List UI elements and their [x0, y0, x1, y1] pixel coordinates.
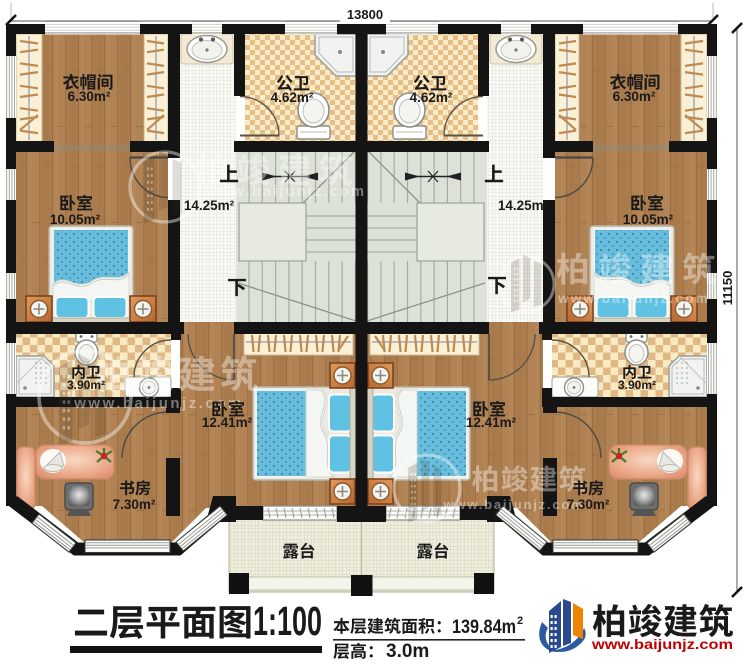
- svg-text:7.30m²: 7.30m²: [113, 497, 156, 512]
- svg-text:12.41m²: 12.41m²: [202, 415, 253, 430]
- svg-text:12.41m²: 12.41m²: [466, 415, 517, 430]
- svg-text:4.62m²: 4.62m²: [410, 90, 453, 105]
- svg-text:13800: 13800: [347, 7, 383, 22]
- svg-text:3.90m²: 3.90m²: [618, 378, 656, 392]
- svg-text:3.0m: 3.0m: [386, 641, 429, 662]
- svg-text:14.25m²: 14.25m²: [184, 198, 235, 213]
- svg-text:2: 2: [517, 615, 523, 627]
- svg-text:10.05m²: 10.05m²: [50, 212, 101, 227]
- svg-text:www.baijunjz.com: www.baijunjz.com: [557, 291, 710, 306]
- svg-text:139.84m: 139.84m: [452, 617, 516, 638]
- svg-text:www.baijunjz.com: www.baijunjz.com: [443, 497, 585, 512]
- svg-text:6.30m²: 6.30m²: [68, 89, 111, 104]
- svg-text:6.30m²: 6.30m²: [613, 89, 656, 104]
- svg-text:4.62m²: 4.62m²: [271, 90, 314, 105]
- svg-text:10.05m²: 10.05m²: [623, 212, 674, 227]
- svg-text:1:100: 1:100: [253, 598, 322, 644]
- svg-text:www.baijunjz.com: www.baijunjz.com: [591, 637, 733, 652]
- svg-text:14.25m²: 14.25m²: [498, 198, 549, 213]
- svg-text:11150: 11150: [720, 271, 735, 306]
- svg-text:3.90m²: 3.90m²: [67, 378, 105, 392]
- svg-text:7.30m²: 7.30m²: [567, 497, 610, 512]
